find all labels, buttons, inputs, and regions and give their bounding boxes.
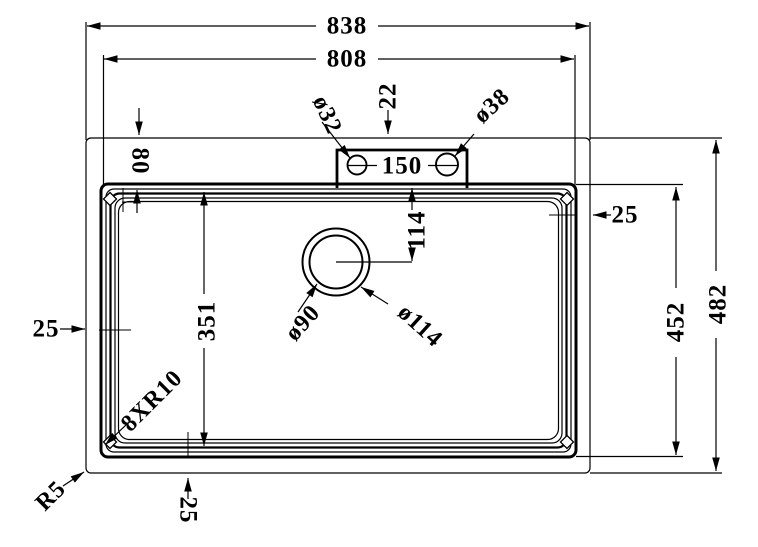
- dim-label-482: 482: [705, 284, 732, 325]
- dim-label-114: 114: [404, 210, 431, 249]
- dimension-80: 80: [127, 108, 154, 213]
- sink-technical-drawing-page: 838 808 482 452 80 22 150 25 25: [0, 0, 758, 547]
- dim-label-o114: ø114: [392, 299, 447, 352]
- dimension-482: 482: [705, 140, 732, 471]
- leader-drain-inner-o90: ø90: [280, 284, 325, 346]
- dimension-351: 351: [194, 192, 221, 446]
- leader-bowl-corners-8xr10: 8XR10: [105, 365, 188, 445]
- leader-line: [455, 134, 474, 156]
- dim-label-838: 838: [327, 13, 368, 40]
- leader-line: [361, 287, 388, 304]
- dim-label-o90: ø90: [280, 300, 325, 346]
- dim-label-r5: R5: [31, 476, 72, 517]
- counter-rect: [86, 138, 590, 473]
- dim-label-452: 452: [663, 302, 690, 343]
- dim-label-rim-left-25: 25: [33, 316, 60, 343]
- dimension-rim-left-25: 25: [33, 316, 86, 343]
- dim-label-rim-bottom-25: 25: [175, 497, 202, 524]
- dim-label-22: 22: [375, 83, 402, 110]
- dim-label-351: 351: [194, 301, 221, 342]
- dim-label-808: 808: [327, 46, 368, 73]
- dimension-114: 114: [336, 188, 431, 262]
- leader-line: [63, 472, 84, 486]
- dim-label-150: 150: [382, 153, 423, 180]
- dimension-452: 452: [663, 187, 690, 455]
- leader-drain-outer-o114: ø114: [361, 287, 448, 353]
- dim-label-o32: ø32: [307, 92, 347, 138]
- dimension-rim-right-25: 25: [593, 202, 639, 229]
- bowl-outer-edge: [101, 184, 576, 457]
- dimension-150: 150: [347, 153, 458, 180]
- sink-technical-drawing: 838 808 482 452 80 22 150 25 25: [0, 0, 758, 547]
- leader-hole-left-o32: ø32: [307, 92, 350, 158]
- dimension-838: 838: [87, 13, 589, 40]
- dimension-22: 22: [375, 83, 402, 135]
- faucet-hole-right-circle: [436, 154, 458, 176]
- dim-label-rim-right-25: 25: [612, 202, 639, 229]
- dim-label-80: 80: [127, 148, 154, 175]
- leader-hole-right-o38: ø38: [455, 83, 515, 156]
- dim-label-8xr10: 8XR10: [116, 365, 188, 437]
- bowl-profile-line-4: [119, 202, 559, 440]
- leader-outer-corner-r5: R5: [31, 472, 84, 516]
- dimension-rim-bottom-25: 25: [175, 478, 202, 524]
- bowl-profile-line-2: [111, 194, 567, 448]
- dimension-808: 808: [104, 46, 574, 73]
- dim-label-o38: ø38: [469, 83, 515, 128]
- bowl-profile: [101, 184, 576, 457]
- counter-outline: [86, 138, 590, 473]
